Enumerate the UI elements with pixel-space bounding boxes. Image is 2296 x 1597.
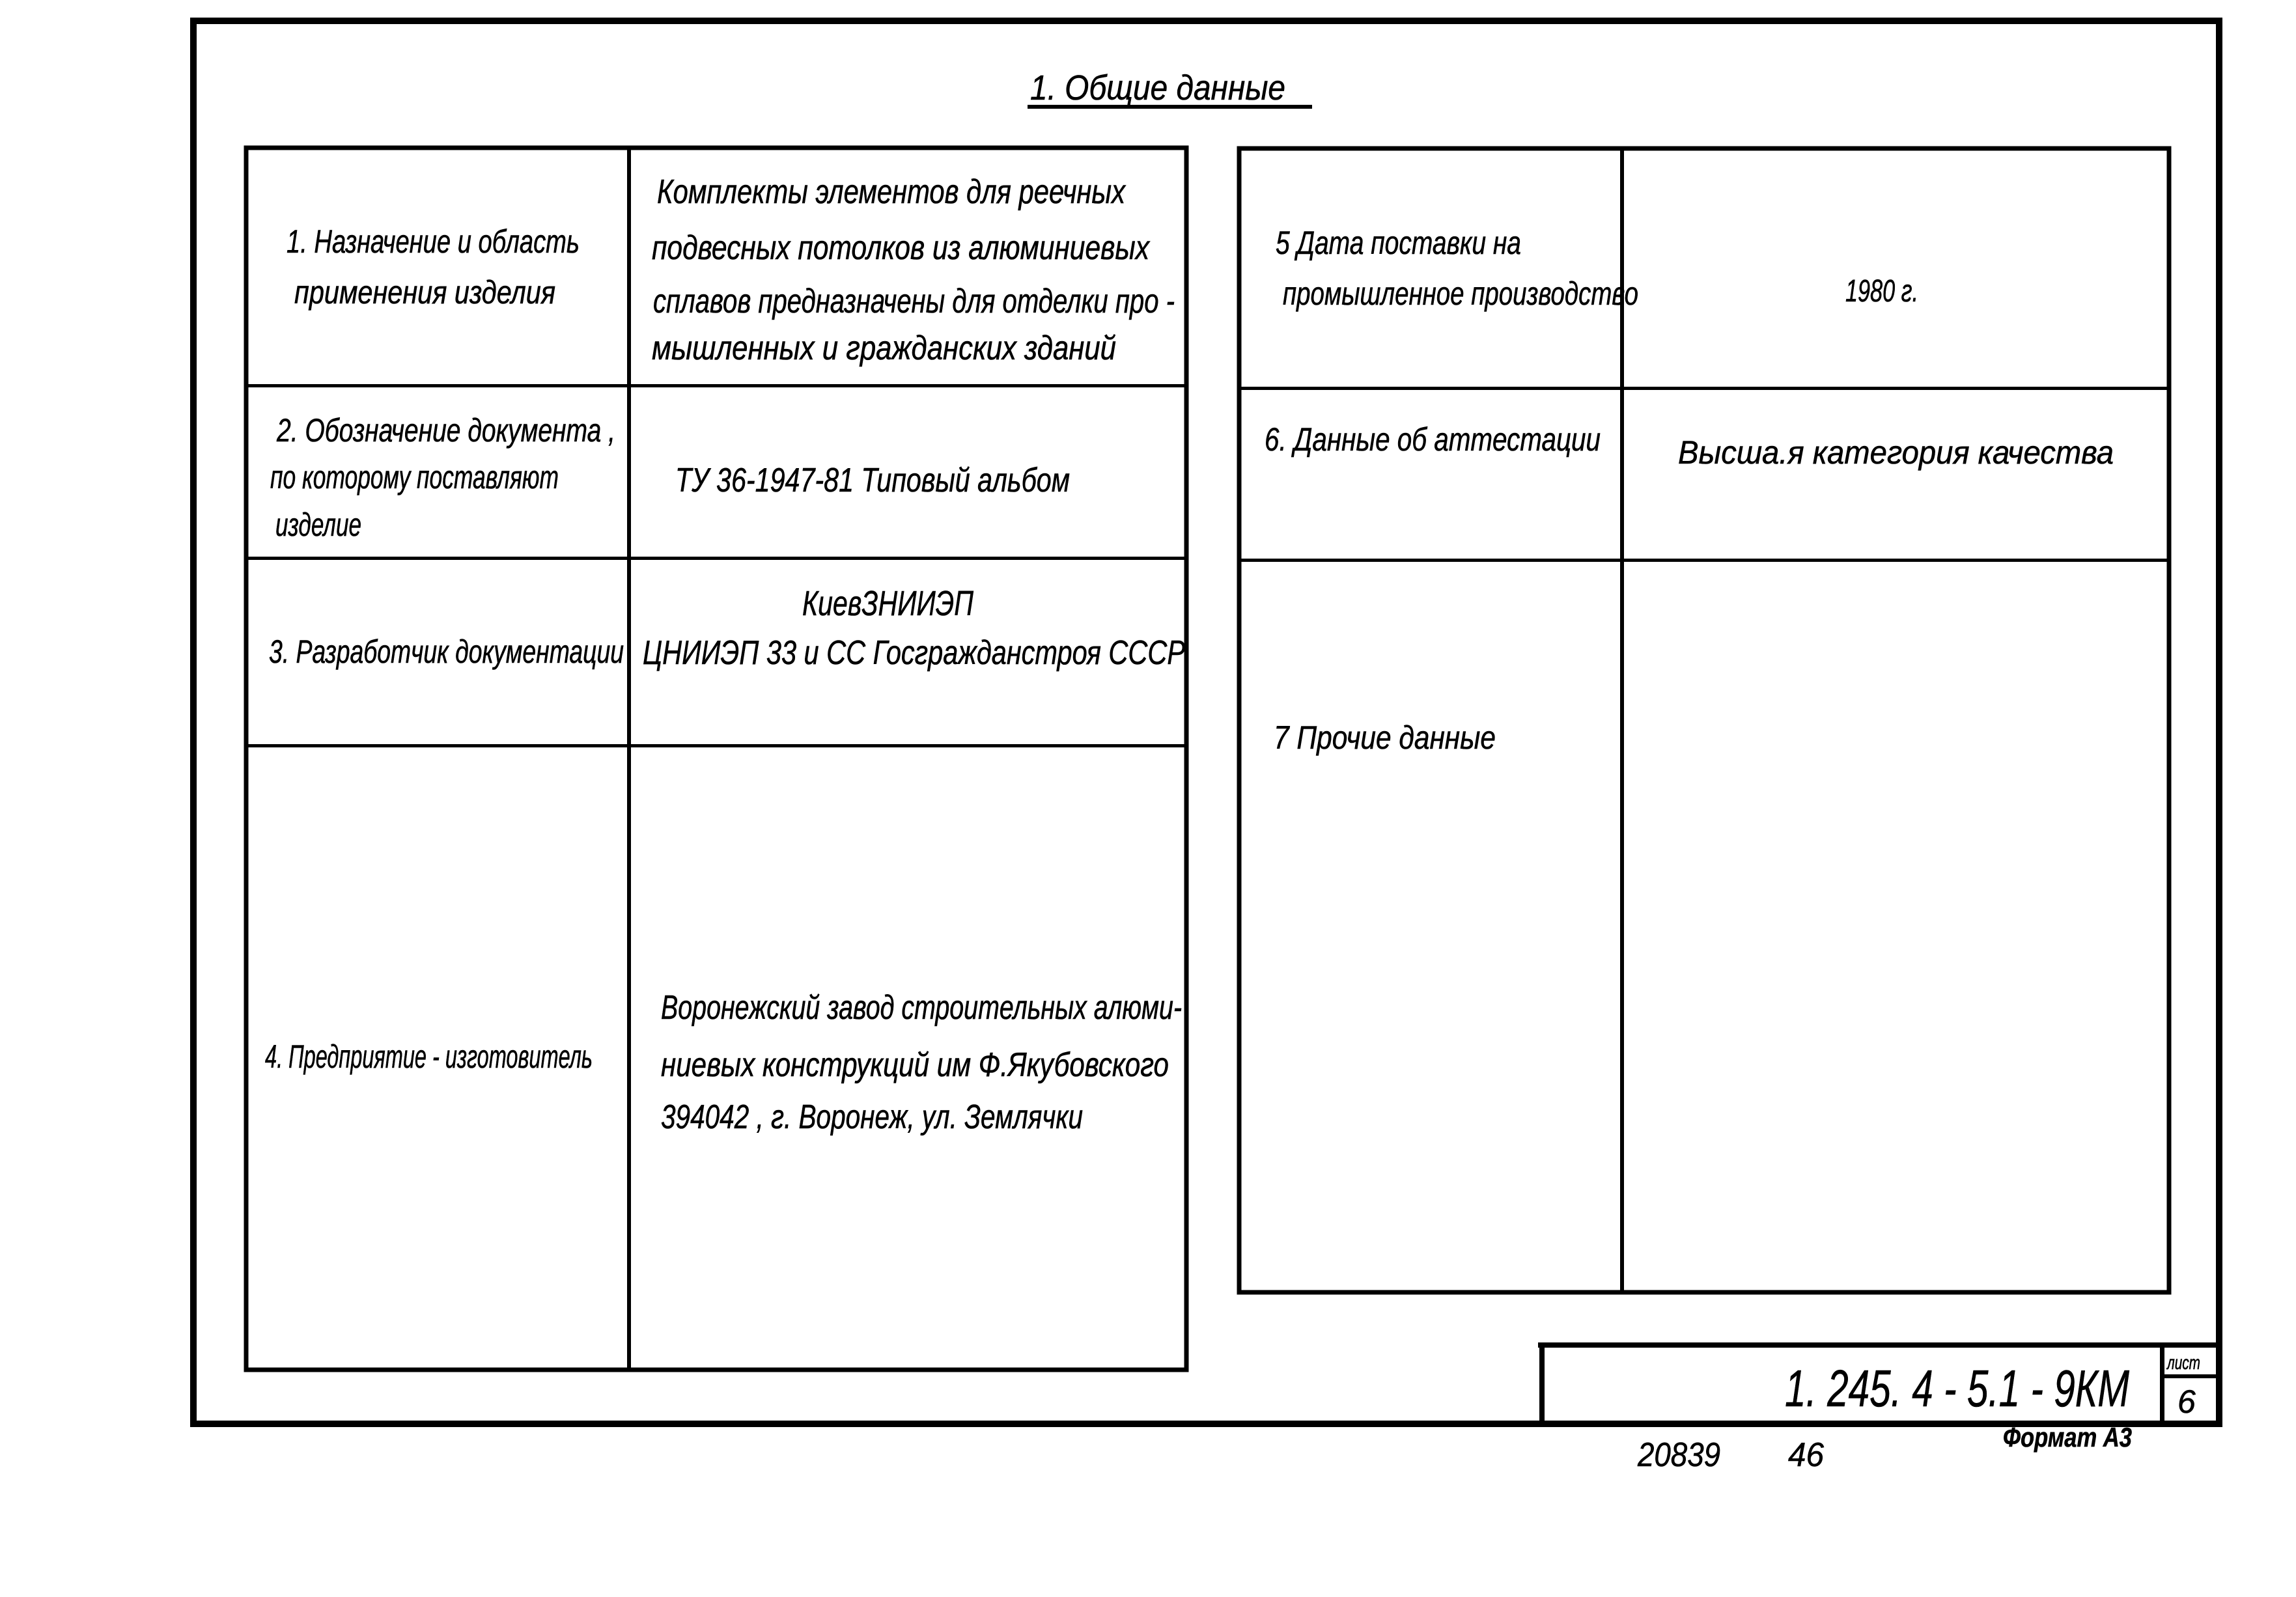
svg-text:по которому поставляют: по которому поставляют	[270, 459, 559, 495]
svg-text:ТУ 36-1947-81 Типовый альбо: ТУ 36-1947-81 Типовый альбом	[675, 462, 1070, 499]
svg-text:46: 46	[1788, 1436, 1824, 1474]
svg-text:3. Разработчик документации: 3. Разработчик документации	[269, 633, 624, 670]
svg-text:20839: 20839	[1637, 1436, 1720, 1474]
svg-text:6: 6	[2177, 1383, 2196, 1420]
svg-text:Высша.я категория качества: Высша.я категория качества	[1678, 434, 2114, 471]
svg-text:1980 г.: 1980 г.	[1845, 274, 1918, 309]
svg-text:2. Обозначение документа ,: 2. Обозначение документа ,	[276, 412, 615, 449]
svg-text:6. Данные об аттестации: 6. Данные об аттестации	[1265, 421, 1601, 458]
svg-text:лист: лист	[2166, 1352, 2200, 1374]
svg-text:КиевЗНИИЭП: КиевЗНИИЭП	[802, 584, 974, 623]
svg-text:1. Назначение и область: 1. Назначение и область	[287, 223, 580, 260]
svg-text:ЦНИИЭП 33 и СС Госгражданстро: ЦНИИЭП 33 и СС Госгражданстроя СССР	[643, 634, 1185, 672]
svg-text:7 Прочие данные: 7 Прочие данные	[1274, 719, 1496, 756]
svg-text:применения изделия: применения изделия	[294, 274, 555, 311]
svg-text:изделие: изделие	[275, 507, 361, 543]
svg-text:1. Общие данные: 1. Общие данные	[1030, 68, 1285, 107]
svg-text:4. Предприятие - изготовитель: 4. Предприятие - изготовитель	[265, 1038, 593, 1075]
svg-text:сплавов предназначены для отд: сплавов предназначены для отделки про -	[653, 283, 1175, 320]
svg-text:394042 , г. Воронеж, ул. Земля: 394042 , г. Воронеж, ул. Землячки	[661, 1098, 1083, 1136]
svg-text:5 Дата поставки на: 5 Дата поставки на	[1276, 225, 1521, 261]
svg-text:подвесных потолков из алюмин: подвесных потолков из алюминиевых	[652, 229, 1151, 267]
svg-text:промышленное производство: промышленное производство	[1283, 275, 1638, 312]
svg-text:ниевых конструкций им Ф.Яку: ниевых конструкций им Ф.Якубовского	[661, 1046, 1169, 1084]
svg-text:1. 245. 4 - 5.1 - 9КМ: 1. 245. 4 - 5.1 - 9КМ	[1785, 1359, 2129, 1417]
svg-text:Воронежский завод строительных: Воронежский завод строительных алюми-	[661, 989, 1182, 1027]
svg-text:мышленных и гражданских здан: мышленных и гражданских зданий	[652, 329, 1116, 367]
svg-text:Формат А3: Формат А3	[2003, 1422, 2132, 1452]
svg-text:Комплекты элементов для рееч: Комплекты элементов для реечных	[657, 173, 1127, 211]
